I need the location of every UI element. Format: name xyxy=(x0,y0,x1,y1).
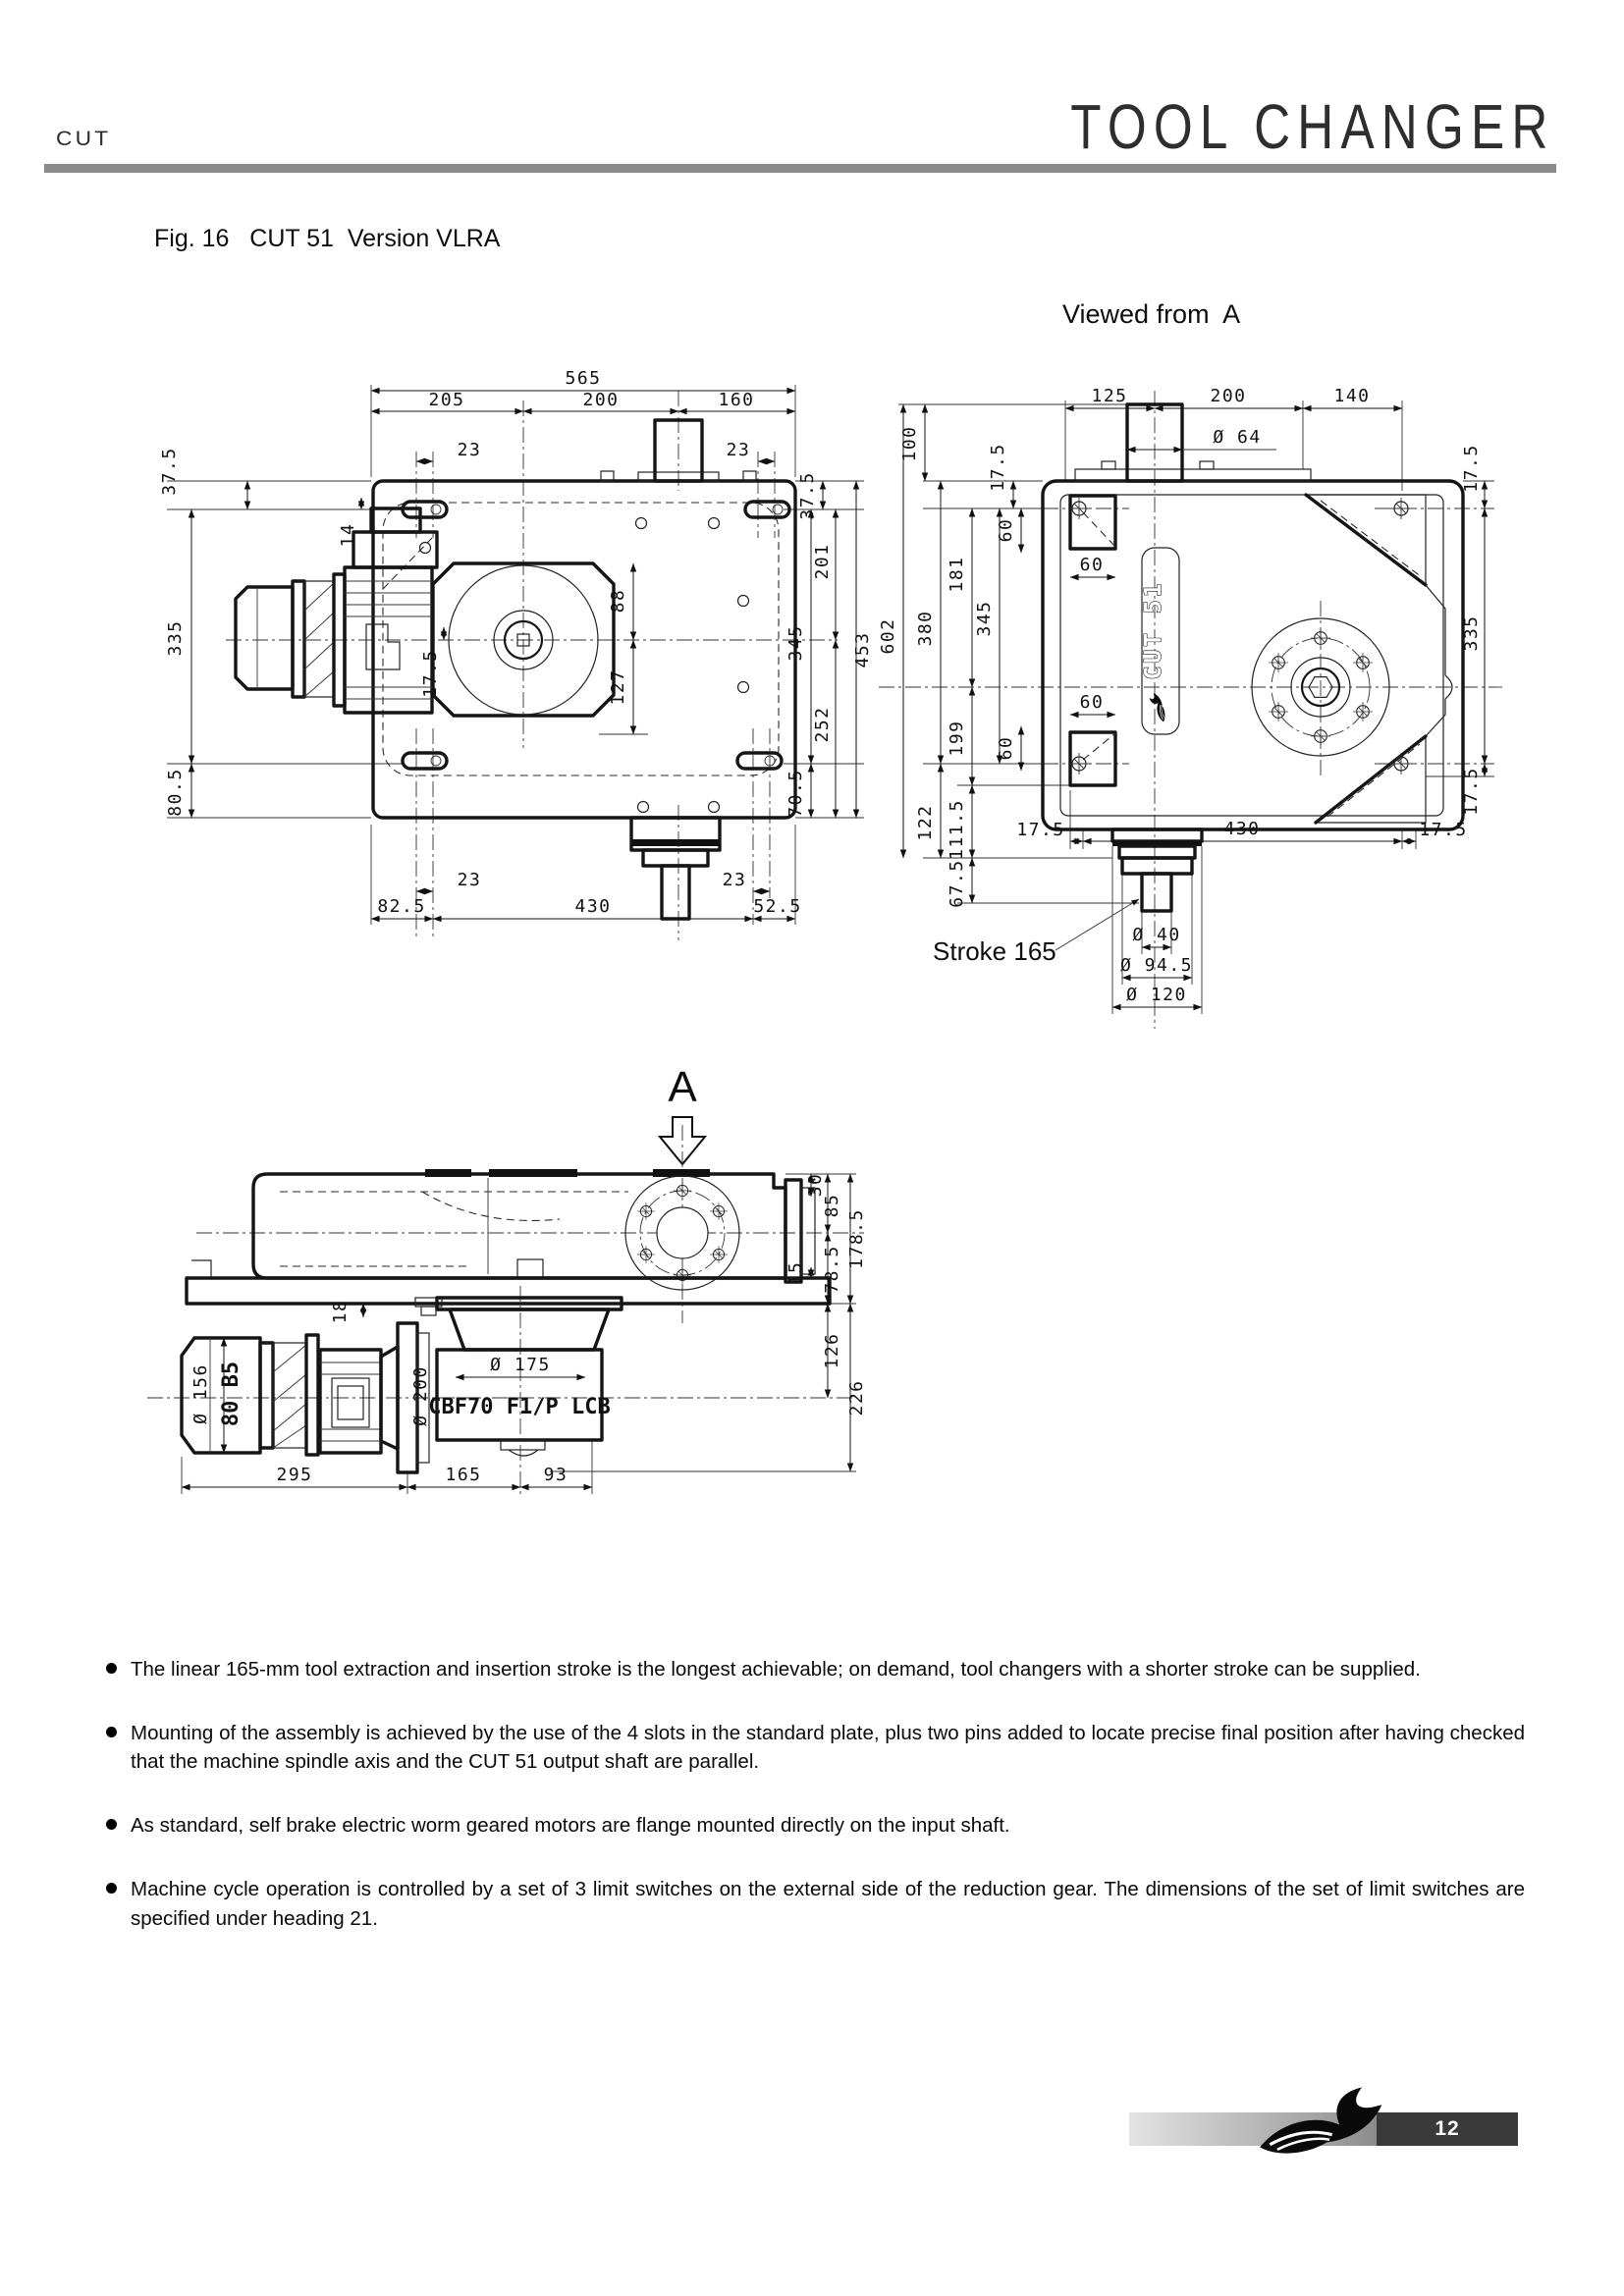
dim-label: 52.5 xyxy=(753,896,801,917)
dim-label: 37.5 xyxy=(159,447,180,495)
dim-label: 345 xyxy=(785,624,806,661)
bullet-icon xyxy=(106,1819,117,1830)
dim-label: Ø 120 xyxy=(1126,985,1187,1005)
page-number: 12 xyxy=(1435,2117,1459,2141)
logo-plate-text: CUT 51 xyxy=(1141,580,1166,679)
dim-label: 60 xyxy=(1080,692,1105,713)
dim-label: 140 xyxy=(1333,386,1370,406)
note-item: The linear 165-mm tool extraction and in… xyxy=(106,1655,1525,1683)
dim-label: 88 xyxy=(608,589,628,614)
dim-label: Ø 156 xyxy=(190,1363,211,1424)
dim-label: 80.5 xyxy=(165,768,186,816)
dim-label: 85 xyxy=(822,1194,842,1218)
note-item: As standard, self brake electric worm ge… xyxy=(106,1811,1525,1840)
dim-label: 37.5 xyxy=(797,471,818,519)
drawing-view-a: CUT 51 125 200 140 Ø 64 100 602 380 122 … xyxy=(878,386,1502,1029)
dim-label: 70.5 xyxy=(785,769,806,817)
dim-label: 200 xyxy=(582,390,619,410)
dim-label: 380 xyxy=(915,610,936,646)
dim-label: Ø 200 xyxy=(410,1365,431,1426)
bullet-icon xyxy=(106,1727,117,1737)
bullet-icon xyxy=(106,1663,117,1674)
footer-page-box: 12 xyxy=(1377,2112,1518,2146)
dim-label: 565 xyxy=(565,368,601,389)
dim-label: 295 xyxy=(276,1465,312,1485)
dim-label: 17.5 xyxy=(988,443,1008,491)
note-item: Mounting of the assembly is achieved by … xyxy=(106,1719,1525,1776)
section-arrow-label: A xyxy=(668,1063,697,1111)
dim-label: 430 xyxy=(1223,819,1260,839)
dim-label: 60 xyxy=(1080,555,1105,575)
dim-label: 17.5 xyxy=(1461,767,1482,815)
dim-label: 335 xyxy=(1461,614,1482,651)
dim-label: 15 xyxy=(785,1261,806,1286)
dim-label: 252 xyxy=(812,706,833,742)
dim-label: 127 xyxy=(608,668,628,705)
dim-label: 18 xyxy=(330,1300,351,1324)
dim-label: 17.5 xyxy=(1016,820,1064,840)
dim-label: 23 xyxy=(727,440,751,460)
note-text: Mounting of the assembly is achieved by … xyxy=(131,1719,1525,1776)
dim-label: 100 xyxy=(899,425,920,461)
dim-label: 17.5 xyxy=(1419,820,1467,840)
dim-label: 200 xyxy=(1210,386,1246,406)
dim-label: 67.5 xyxy=(947,859,967,907)
dim-label: Ø 64 xyxy=(1213,427,1261,448)
drawing-side-view: A xyxy=(147,1063,867,1494)
dim-label: 23 xyxy=(458,870,482,890)
dim-label: 14 xyxy=(338,523,358,548)
dim-label: 60 xyxy=(996,518,1016,543)
dim-label: 17.5 xyxy=(1461,444,1482,492)
brand-logo-swan xyxy=(1255,2085,1384,2160)
dim-label: 205 xyxy=(428,390,464,410)
note-text: Machine cycle operation is controlled by… xyxy=(131,1875,1525,1932)
dim-label: 160 xyxy=(718,390,754,410)
dim-label: 60 xyxy=(996,736,1016,761)
dim-label: 23 xyxy=(458,440,482,460)
note-text: The linear 165-mm tool extraction and in… xyxy=(131,1655,1421,1683)
stroke-label: Stroke 165 xyxy=(933,936,1056,966)
drawing-plan-view: 565 205 200 160 23 23 37.5 14 335 80.5 3… xyxy=(159,368,873,940)
dim-label: 23 xyxy=(723,870,747,890)
dim-label: 199 xyxy=(947,720,967,756)
dim-label: Ø 94.5 xyxy=(1120,955,1193,976)
dim-label: 345 xyxy=(974,600,995,636)
dim-label: Ø 175 xyxy=(490,1355,551,1375)
dim-label: 122 xyxy=(915,804,936,840)
dim-label: 430 xyxy=(574,896,611,917)
dim-label: 181 xyxy=(947,556,967,592)
dim-label: 30 xyxy=(805,1173,826,1198)
note-text: As standard, self brake electric worm ge… xyxy=(131,1811,1010,1840)
notes-list: The linear 165-mm tool extraction and in… xyxy=(106,1655,1525,1968)
dim-label: 453 xyxy=(852,631,873,667)
dim-label: 125 xyxy=(1091,386,1127,406)
motor-frame-label: 80 B5 xyxy=(219,1362,244,1426)
dim-label: 226 xyxy=(846,1379,867,1415)
dim-label: Ø 40 xyxy=(1132,925,1180,945)
dim-label: 335 xyxy=(165,619,186,656)
dim-label: 178.5 xyxy=(846,1208,867,1269)
dim-label: 602 xyxy=(878,617,898,654)
dim-label: 17.5 xyxy=(420,649,441,697)
dim-label: 93 xyxy=(544,1465,568,1485)
dim-label: 111.5 xyxy=(947,799,967,860)
dim-label: 82.5 xyxy=(377,896,425,917)
motor-code-label: CBF70 F1/P LCB xyxy=(428,1395,610,1419)
dim-label: 201 xyxy=(812,543,833,579)
dim-label: 126 xyxy=(822,1332,842,1368)
note-item: Machine cycle operation is controlled by… xyxy=(106,1875,1525,1932)
dim-label: 165 xyxy=(445,1465,481,1485)
dim-label: 78.5 xyxy=(822,1245,842,1293)
document-page: CUT TOOL CHANGER Fig. 16 CUT 51 Version … xyxy=(0,0,1624,2296)
bullet-icon xyxy=(106,1883,117,1894)
